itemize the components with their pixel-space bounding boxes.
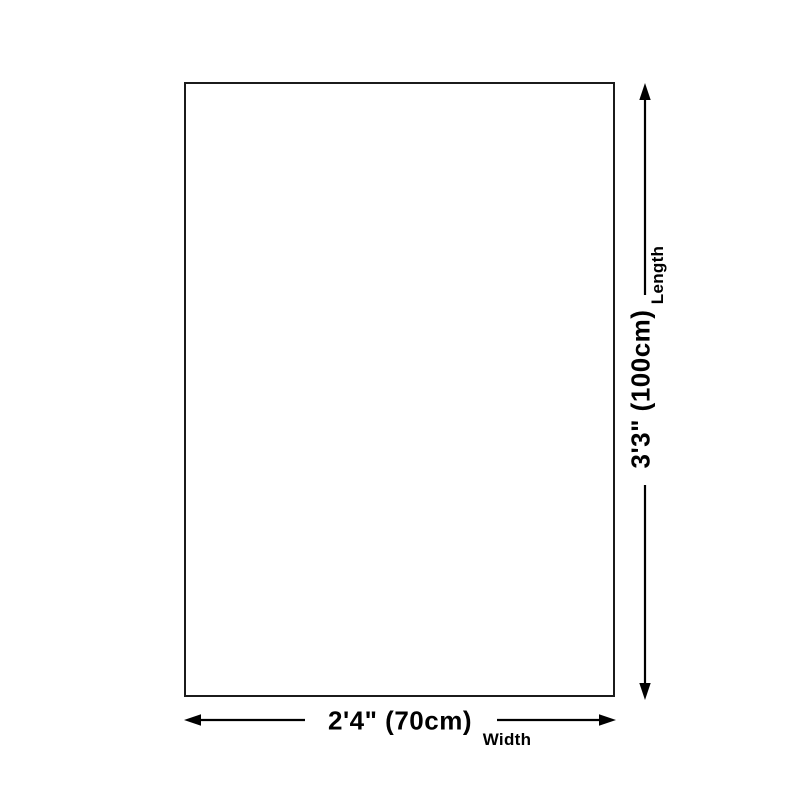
dimension-diagram: 3'3" (100cm) Length 2'4" (70cm) Width [0,0,800,800]
length-dimension-label: Length [648,246,668,304]
length-dimension-value: 3'3" (100cm) [626,310,657,469]
product-outline-rectangle [184,82,615,697]
width-dimension-label: Width [483,730,532,750]
width-dimension-value: 2'4" (70cm) [328,706,472,737]
